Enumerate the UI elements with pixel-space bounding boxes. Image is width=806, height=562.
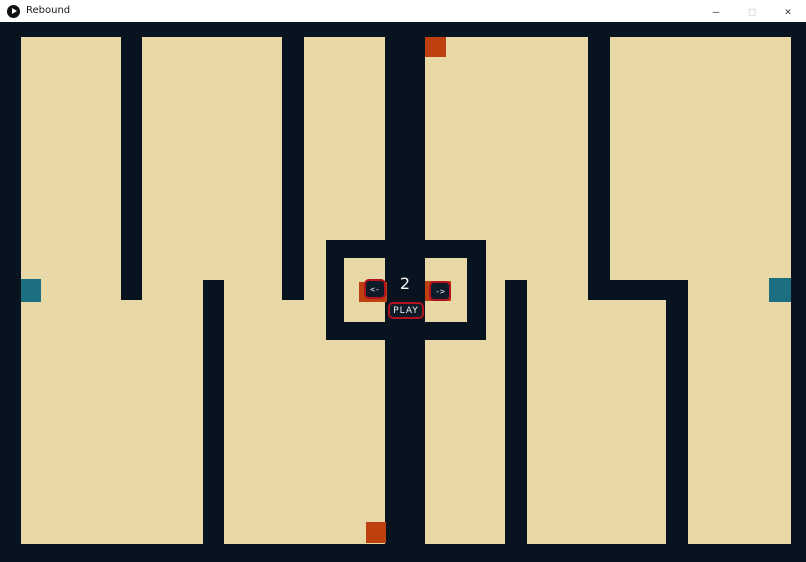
app-play-icon xyxy=(7,5,20,18)
teal-square-right xyxy=(769,278,791,302)
wall-bottom-left xyxy=(203,280,224,562)
wall-bottom-mid-right xyxy=(505,280,527,562)
game-area: <- 2 -> PLAY xyxy=(0,22,806,562)
orange-square-top xyxy=(425,37,446,57)
orange-square-bottom xyxy=(366,522,386,543)
window-controls: – □ ✕ xyxy=(698,0,806,22)
wall-top-left xyxy=(121,22,142,300)
wall-top-mid-left xyxy=(282,22,304,300)
teal-square-left xyxy=(21,279,41,302)
maximize-button: □ xyxy=(734,0,770,22)
close-button[interactable]: ✕ xyxy=(770,0,806,22)
minimize-button[interactable]: – xyxy=(698,0,734,22)
level-indicator: 2 xyxy=(390,274,420,294)
wall-top-right xyxy=(588,22,610,300)
prev-level-button[interactable]: <- xyxy=(364,279,386,299)
wall-bottom-right xyxy=(666,280,688,562)
title-bar: Rebound – □ ✕ xyxy=(0,0,806,22)
next-level-button[interactable]: -> xyxy=(429,281,451,301)
play-button[interactable]: PLAY xyxy=(388,302,424,319)
window-title: Rebound xyxy=(26,0,70,22)
